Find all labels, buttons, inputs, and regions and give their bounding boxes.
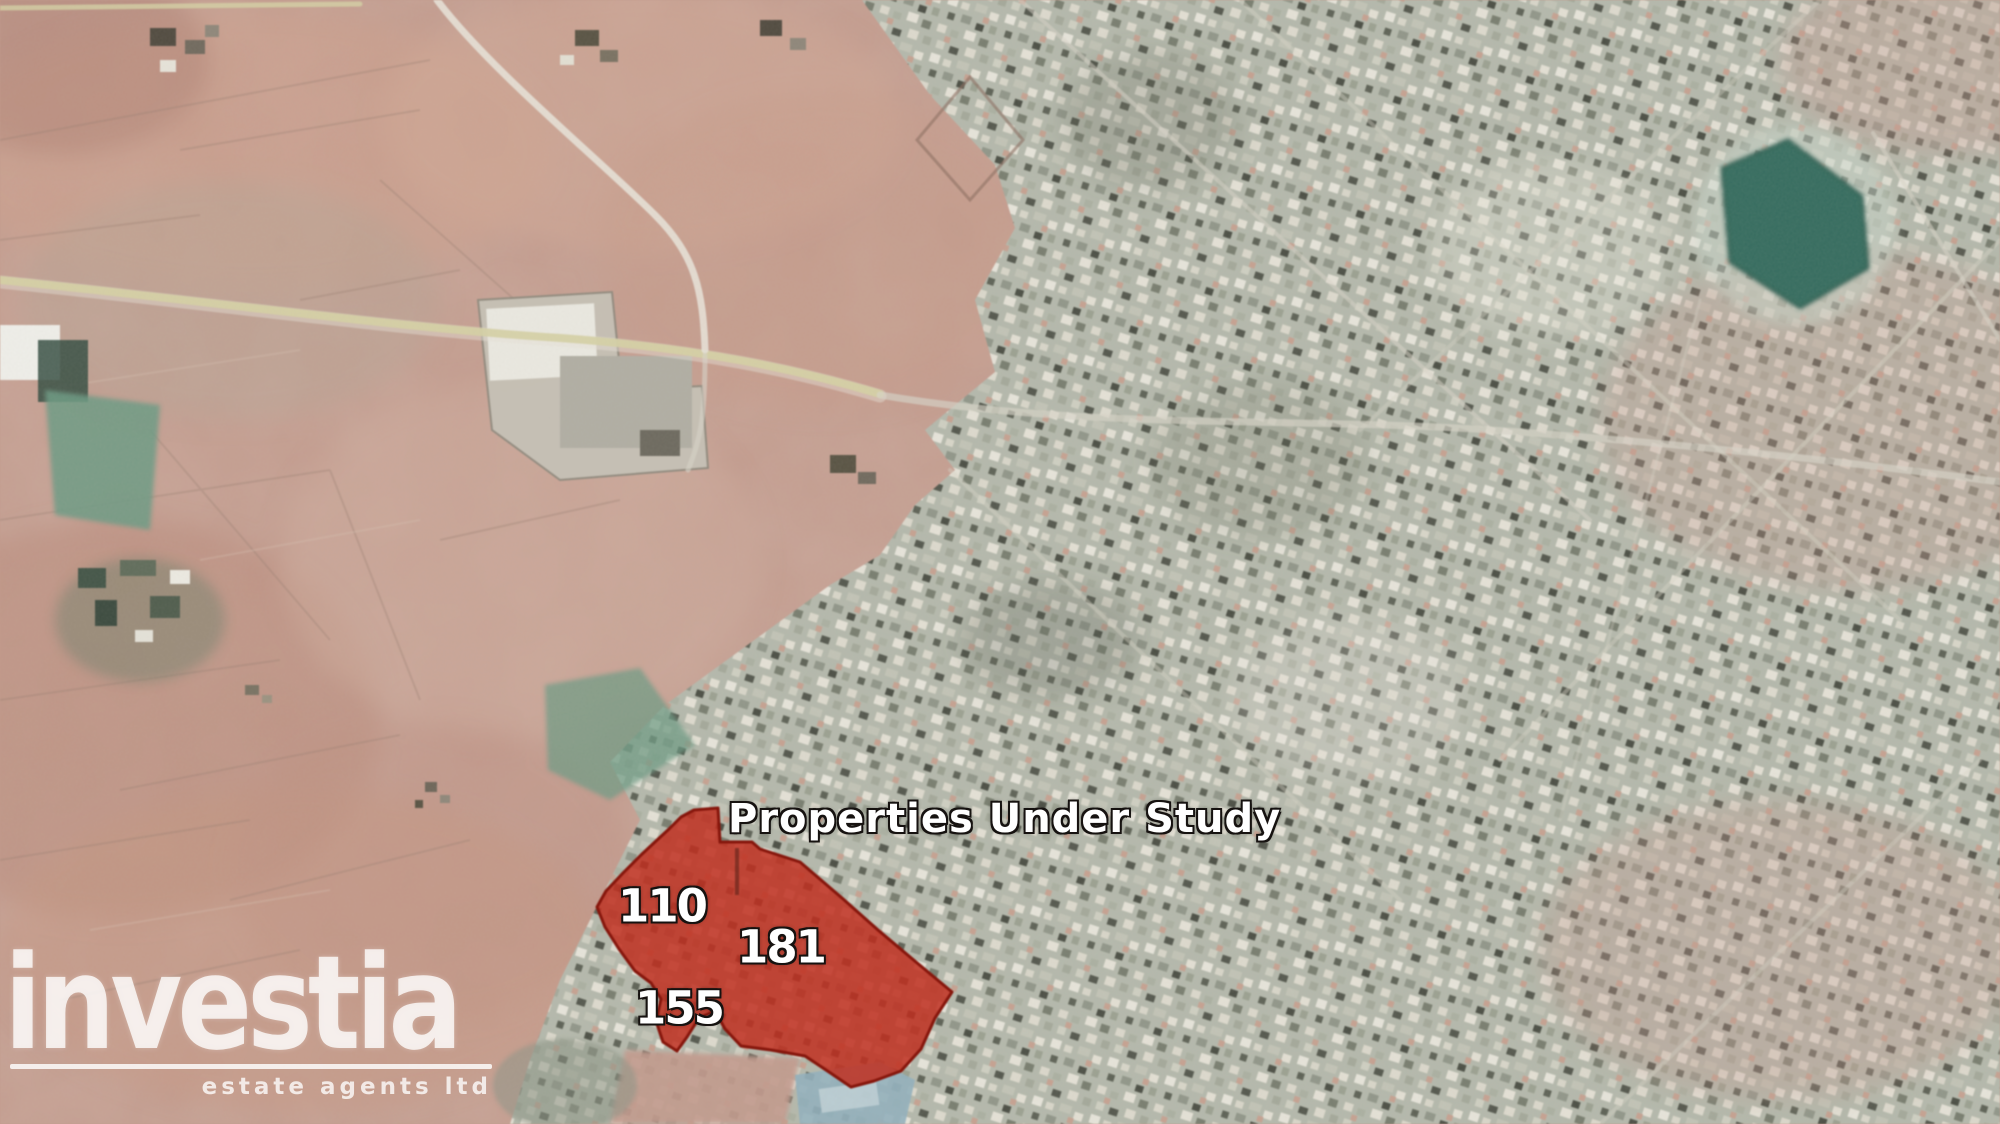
parcel-label-155: 155 [635, 984, 723, 1031]
properties-under-study-label: Properties Under Study [728, 798, 1281, 840]
watermark-tagline: estate agents ltd [10, 1074, 492, 1100]
watermark-brand: investia [4, 938, 429, 1068]
parcel-label-110: 110 [618, 882, 706, 929]
satellite-map: Properties Under Study 110 181 155 inves… [0, 0, 2000, 1124]
watermark: investia estate agents ltd [4, 938, 504, 1068]
watermark-underline [10, 1064, 492, 1069]
parcel-label-181: 181 [737, 923, 825, 970]
